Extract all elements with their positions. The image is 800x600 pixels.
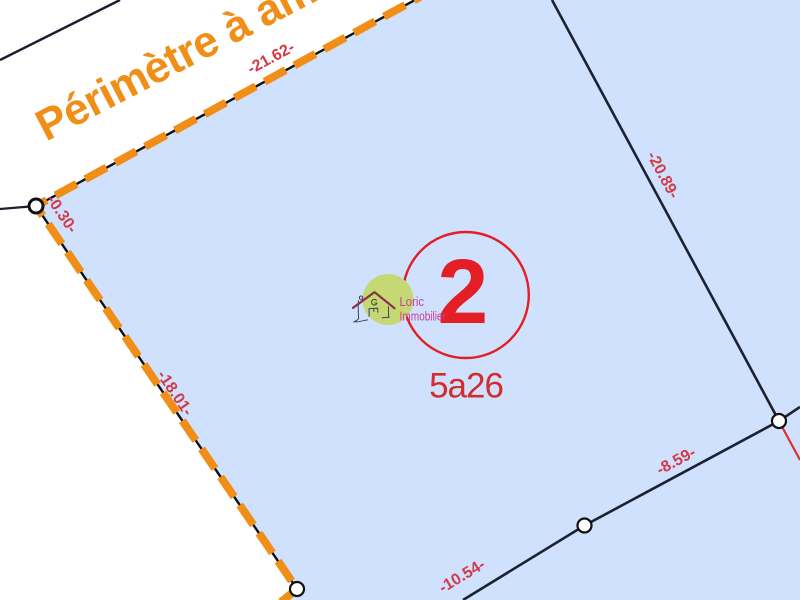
svg-text:2: 2: [437, 241, 488, 343]
svg-text:Immobilier: Immobilier: [400, 308, 447, 323]
svg-text:Loric: Loric: [400, 294, 425, 309]
svg-text:5a26: 5a26: [429, 367, 503, 406]
